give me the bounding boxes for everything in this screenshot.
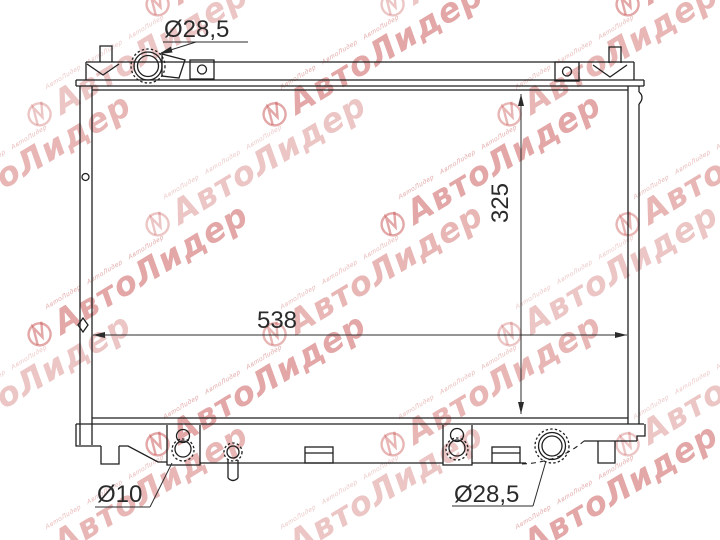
- radiator-line-drawing: 538 325 Ø28,5 Ø10 Ø28,5: [0, 0, 720, 540]
- core-and-side-plates: [78, 86, 642, 445]
- mount-bracket-right: [443, 425, 472, 465]
- filler-neck-label: Ø28,5: [164, 16, 229, 43]
- dim-width-label: 538: [257, 307, 297, 334]
- top-bracket-right: [555, 62, 579, 81]
- top-left-v-mark: [87, 64, 119, 75]
- drain-plug-label: Ø10: [97, 481, 142, 508]
- label-outlet: Ø28,5: [452, 461, 546, 508]
- radiator-diagram-page: АвтоЛидер АвтоЛидер АвтоЛидерАвтоЛидерАв…: [0, 0, 720, 540]
- top-right-post: [609, 47, 621, 63]
- label-filler-neck: Ø28,5: [159, 16, 248, 54]
- top-right-v-mark: [593, 65, 627, 77]
- outlet-label: Ø28,5: [454, 481, 519, 508]
- top-left-post: [100, 46, 112, 62]
- top-bracket-left: [190, 60, 214, 79]
- bottom-bracket-right: [492, 447, 520, 463]
- side-plate-hole: [82, 174, 89, 181]
- bottom-foot-right: [598, 441, 615, 463]
- dimension-height-325: 325: [487, 94, 524, 414]
- bottom-bracket-left: [305, 447, 333, 463]
- filler-neck: [131, 49, 185, 83]
- label-drain-plug: Ø10: [95, 463, 172, 508]
- bottom-tank: [76, 424, 645, 481]
- dim-height-label: 325: [487, 183, 514, 223]
- dimension-width-538: 538: [93, 307, 627, 338]
- mount-bracket-left: [167, 425, 200, 465]
- drain-plug: [224, 443, 242, 481]
- outlet-port: [535, 429, 569, 463]
